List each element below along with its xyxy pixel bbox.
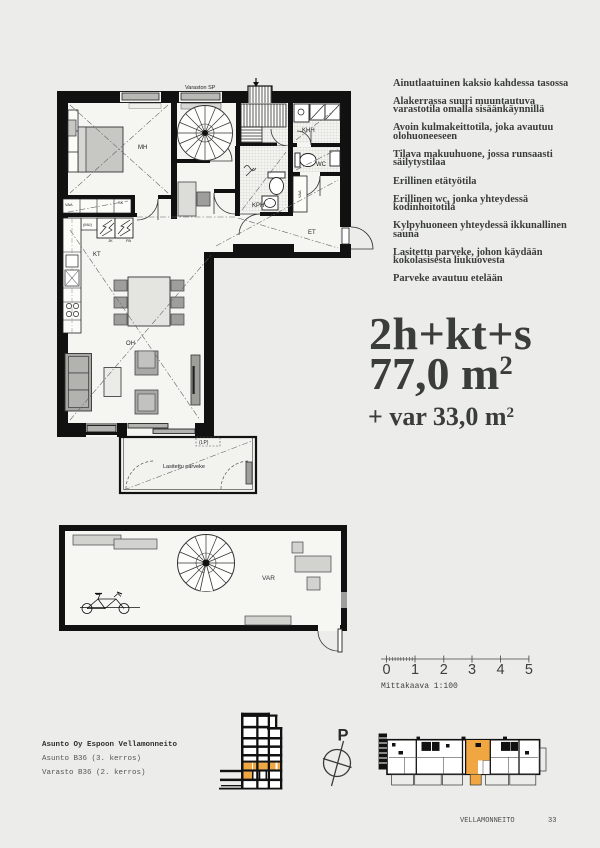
svg-text:JK: JK [108,238,113,243]
svg-text:2: 2 [440,662,448,678]
svg-text:PA: PA [126,238,131,243]
svg-text:(MU): (MU) [83,222,93,227]
svg-text:4: 4 [497,662,505,678]
svg-text:VAA: VAA [65,202,73,207]
svg-text:MH: MH [138,145,147,151]
svg-text:1: 1 [411,662,419,678]
svg-text:Varaston SP: Varaston SP [185,85,216,91]
svg-text:ET: ET [308,230,316,236]
svg-text:Lasitettu parveke: Lasitettu parveke [163,464,205,470]
svg-text:WC: WC [316,162,327,168]
svg-text:0: 0 [383,662,391,678]
svg-text:(LP): (LP) [199,440,209,446]
svg-text:KHH: KHH [302,128,315,134]
svg-text:VAR: VAR [262,575,275,582]
svg-text:5: 5 [525,662,533,678]
svg-text:VAA: VAA [297,190,302,198]
svg-text:3: 3 [468,662,476,678]
svg-text:KT: KT [93,252,101,258]
svg-text:OH: OH [126,341,135,347]
svg-text:P: P [337,727,348,745]
svg-text:KPH: KPH [252,203,264,209]
